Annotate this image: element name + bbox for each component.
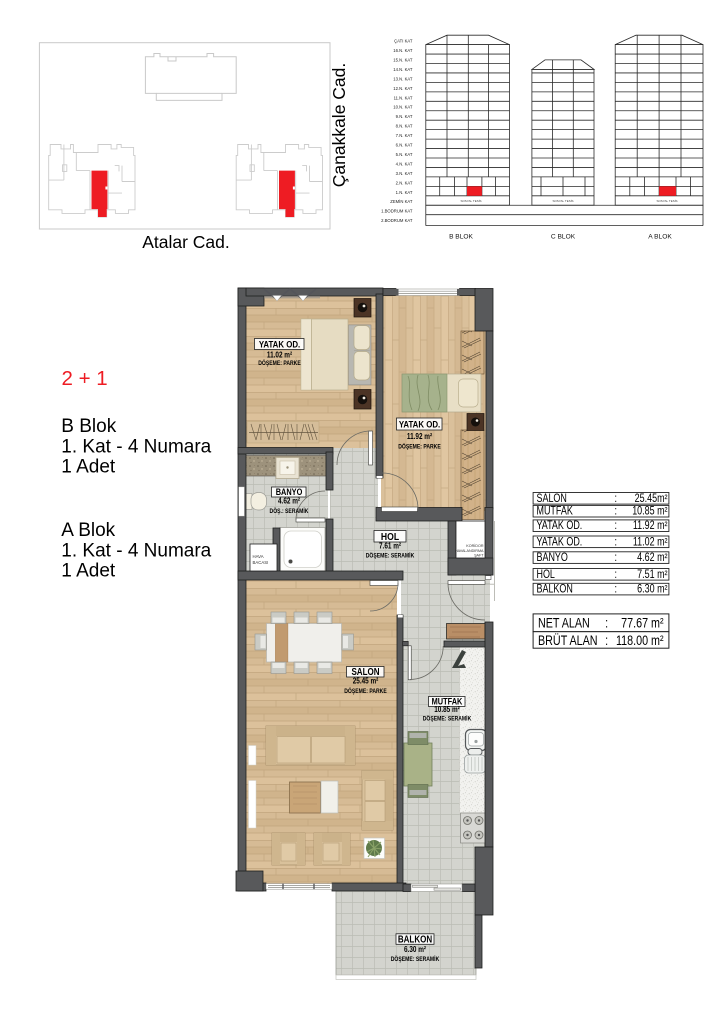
svg-text:2.BODRUM KAT: 2.BODRUM KAT	[381, 218, 413, 223]
svg-text:6.30 m²: 6.30 m²	[404, 945, 427, 954]
svg-text:YATAK OD.: YATAK OD.	[537, 520, 583, 532]
svg-text:KORİDOR: KORİDOR	[466, 543, 484, 548]
svg-text:1 Adet: 1 Adet	[61, 561, 116, 582]
svg-text:DÖŞEME: PARKE: DÖŞEME: PARKE	[398, 443, 441, 451]
svg-text:10.85 m²: 10.85 m²	[434, 705, 460, 714]
svg-text:BANYO: BANYO	[537, 552, 568, 564]
svg-text:15.N. KAT: 15.N. KAT	[393, 57, 412, 62]
svg-text:HAVALANDIRMA: HAVALANDIRMA	[455, 549, 484, 553]
svg-text::: :	[615, 584, 618, 596]
svg-text::: :	[605, 633, 608, 649]
svg-text:MUTFAK: MUTFAK	[537, 506, 573, 518]
svg-text:2.N. KAT: 2.N. KAT	[396, 180, 413, 185]
svg-text:1.BODRUM KAT: 1.BODRUM KAT	[381, 208, 413, 213]
svg-text:118.00 m²: 118.00 m²	[616, 633, 664, 649]
svg-text::: :	[615, 520, 618, 532]
svg-text:ZEMİN KAT: ZEMİN KAT	[390, 198, 412, 204]
svg-text:SALON: SALON	[537, 493, 567, 505]
svg-text:BACASI: BACASI	[253, 560, 269, 565]
svg-text:4.62 m²: 4.62 m²	[278, 497, 301, 506]
svg-text:6.30 m²: 6.30 m²	[637, 584, 668, 596]
svg-text:7.51 m²: 7.51 m²	[637, 569, 668, 581]
svg-text:DÖŞEME: SERAMİK: DÖŞEME: SERAMİK	[366, 552, 415, 560]
svg-text:YATAK OD.: YATAK OD.	[259, 339, 300, 350]
svg-text:10.85 m²: 10.85 m²	[632, 506, 668, 518]
svg-text:B Blok: B Blok	[61, 416, 116, 437]
svg-text:BALKON: BALKON	[398, 934, 432, 945]
svg-text:4.N. KAT: 4.N. KAT	[396, 161, 413, 166]
svg-text:11.02 m²: 11.02 m²	[633, 536, 668, 548]
svg-text:BANYO: BANYO	[276, 488, 303, 498]
svg-text:DÖŞ.: SERAMİK: DÖŞ.: SERAMİK	[270, 508, 310, 516]
svg-text:DÖŞEME: PARKE: DÖŞEME: PARKE	[258, 359, 301, 367]
svg-text:11.N. KAT: 11.N. KAT	[394, 95, 413, 100]
svg-text:SOSYAL TESİS: SOSYAL TESİS	[656, 198, 677, 203]
svg-text:10.N. KAT: 10.N. KAT	[393, 105, 412, 110]
svg-text:C BLOK: C BLOK	[551, 234, 576, 241]
svg-text:DÖŞEME: SERAMİK: DÖŞEME: SERAMİK	[391, 956, 440, 964]
svg-text:YATAK OD.: YATAK OD.	[537, 536, 583, 548]
svg-text:HAVA: HAVA	[253, 554, 264, 559]
svg-text:3.N. KAT: 3.N. KAT	[396, 171, 413, 176]
svg-text::: :	[615, 552, 618, 564]
svg-text:14.N. KAT: 14.N. KAT	[393, 67, 412, 72]
svg-text:2 + 1: 2 + 1	[62, 367, 108, 390]
svg-text:16.N. KAT: 16.N. KAT	[393, 48, 412, 53]
svg-text:8.N. KAT: 8.N. KAT	[396, 123, 413, 128]
svg-text:A Blok: A Blok	[61, 520, 115, 541]
svg-text::: :	[605, 615, 608, 631]
svg-text:SOSYAL TESİS: SOSYAL TESİS	[552, 198, 573, 203]
svg-text:ÇATI KAT: ÇATI KAT	[394, 38, 413, 43]
svg-text::: :	[615, 493, 618, 505]
svg-text:25.45 m²: 25.45 m²	[353, 677, 379, 686]
svg-text:Atalar Cad.: Atalar Cad.	[142, 232, 230, 252]
svg-text:25.45m²: 25.45m²	[635, 493, 668, 505]
svg-text:9.N. KAT: 9.N. KAT	[396, 114, 413, 119]
svg-text:13.N. KAT: 13.N. KAT	[393, 76, 412, 81]
svg-text:YATAK OD.: YATAK OD.	[399, 419, 440, 430]
svg-text:HOL: HOL	[537, 569, 556, 581]
svg-text:1 Adet: 1 Adet	[61, 457, 116, 478]
svg-text:1. Kat - 4 Numara: 1. Kat - 4 Numara	[61, 540, 211, 561]
svg-text:BRÜT ALAN: BRÜT ALAN	[538, 633, 598, 649]
svg-text:11.92 m²: 11.92 m²	[407, 432, 433, 441]
svg-text::: :	[615, 506, 618, 518]
svg-text::: :	[615, 569, 618, 581]
svg-text:1.N. KAT: 1.N. KAT	[396, 190, 413, 195]
svg-text:ŞAFT: ŞAFT	[474, 554, 484, 558]
svg-text:11.02 m²: 11.02 m²	[267, 351, 293, 360]
svg-text:SALON: SALON	[351, 666, 379, 677]
svg-text:5.N. KAT: 5.N. KAT	[396, 152, 413, 157]
svg-text:6.N. KAT: 6.N. KAT	[396, 142, 413, 147]
svg-text:A BLOK: A BLOK	[648, 234, 672, 241]
svg-text:B BLOK: B BLOK	[449, 234, 473, 241]
svg-text:1. Kat - 4 Numara: 1. Kat - 4 Numara	[61, 436, 211, 457]
svg-text:DÖŞEME: PARKE: DÖŞEME: PARKE	[344, 687, 387, 695]
svg-text:BALKON: BALKON	[537, 584, 573, 596]
svg-text::: :	[615, 536, 618, 548]
svg-text:DÖŞEME: SERAMİK: DÖŞEME: SERAMİK	[423, 715, 472, 723]
svg-text:SOSYAL TESİS: SOSYAL TESİS	[460, 198, 481, 203]
svg-text:7.61 m²: 7.61 m²	[379, 542, 402, 551]
svg-text:11.92 m²: 11.92 m²	[633, 520, 668, 532]
svg-text:4.62 m²: 4.62 m²	[637, 552, 668, 564]
svg-text:NET ALAN: NET ALAN	[538, 615, 590, 631]
svg-text:Çanakkale Cad.: Çanakkale Cad.	[329, 63, 349, 188]
svg-text:7.N. KAT: 7.N. KAT	[396, 133, 413, 138]
svg-text:12.N. KAT: 12.N. KAT	[393, 86, 412, 91]
svg-text:77.67 m²: 77.67 m²	[621, 615, 663, 631]
